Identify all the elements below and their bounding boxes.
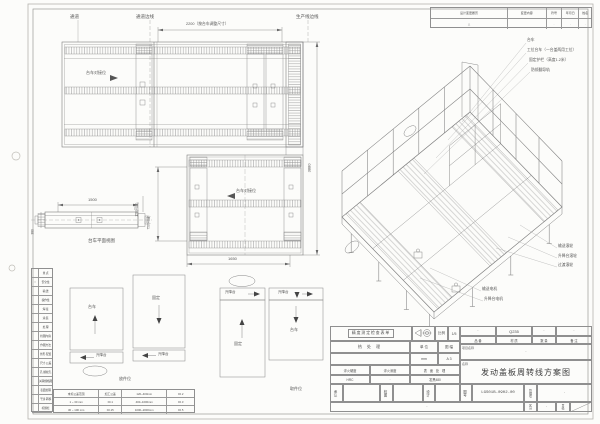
callout-conveyor-motor: 输送电机: [482, 287, 497, 291]
design-label-cell: 设计: [423, 384, 435, 402]
remark-value-cell: ·: [556, 326, 592, 336]
review-sign-cell: [393, 384, 423, 402]
quench-depth-value-cell: ·: [370, 375, 410, 384]
detail-ellipse: [402, 124, 418, 139]
plan-view-top: [62, 20, 308, 155]
drawing-name-label: 名称: [462, 362, 468, 366]
accuracy-check-cell: 精度测定检查表单: [330, 326, 412, 341]
scale-value-cell: 1/5: [448, 326, 460, 341]
table-row: 1 ~ 30 mm ±0.1 400~1000mm ±0.3: [54, 398, 194, 406]
table-row: 输 送: [32, 287, 52, 296]
projection-symbol-cell: [412, 326, 435, 341]
label-passage: 通道: [70, 15, 79, 20]
dim-1650: 1650: [228, 257, 237, 261]
diagram-lift-label: 升降台: [278, 291, 289, 295]
heat-treatment-label-cell: 热 处 理: [330, 341, 410, 353]
dwgno-label-cell: 图号: [460, 384, 472, 402]
diagram-lift-label: 升降台: [158, 353, 169, 357]
isometric-view: [342, 62, 562, 327]
dock-arrow: [227, 193, 235, 199]
drawing-number: LGS01B-0902-00: [481, 391, 515, 395]
page-label-cell: 页码: [556, 402, 570, 412]
material-value-cell: Q235: [496, 326, 532, 336]
third-angle-projection-icon: [413, 327, 433, 339]
format-value-cell: A 3: [438, 353, 460, 365]
revision-table: 设计变更履历 变更内容 符号 年月日 姓名 △ · · ·: [430, 7, 592, 28]
label-dock-2: 台车对接位: [236, 189, 256, 193]
callout-conveyor-roller: 输送滚轮: [558, 244, 573, 248]
format-label-cell: 图 幅: [438, 341, 460, 353]
table-row: 作图方法: [32, 341, 52, 350]
callout-station-trolley: 工位台车（一台盖两用工位）: [527, 48, 576, 52]
label-prod-edge: 生产线边线: [296, 15, 319, 20]
punch-hole: [12, 152, 20, 160]
bottom-note-cell: ·: [330, 402, 524, 412]
table-row: 干涉·转移: [32, 395, 52, 404]
heat-treatment-value-cell: [330, 353, 410, 365]
drawing-number-cell: LGS01B-0902-00: [472, 384, 524, 402]
callout-lift-motor: 升降台电机: [484, 297, 503, 301]
label-place-position: 放件位: [119, 377, 131, 381]
surface-treatment-value-cell: 发黑480: [410, 375, 460, 384]
material-label-cell: 材 质: [496, 336, 532, 344]
diagram-lift-label: 升降台: [225, 291, 236, 295]
accuracy-check-label: 精度测定检查表单: [348, 329, 394, 338]
motor: [414, 252, 422, 258]
table-row: 未标公差范围 加工公差 120~400mm ±0.2: [54, 390, 194, 398]
label-pick-position: 取件位: [290, 387, 302, 391]
table-row: 涂 装: [32, 314, 52, 323]
surface-treatment-label-cell: 表 面 处 理: [410, 365, 460, 375]
dim-2200: 2200（按台车调整尺寸）: [186, 22, 229, 26]
class-value-cell: ·: [537, 402, 556, 412]
dock-arrow: [110, 75, 118, 81]
diagram-fixed-label: 固定: [234, 342, 242, 346]
quench-hardness-value-cell: HRC: [330, 375, 370, 384]
dim-750: 750(可调): [147, 216, 151, 230]
quench-depth-label-cell: 淬火深度: [370, 365, 410, 375]
table-row: 表面处理: [32, 386, 52, 395]
table-row: 尺寸·公差: [32, 359, 52, 368]
quench-hardness-label-cell: 淬火硬度: [330, 365, 370, 375]
remark-label-cell: 备 注: [556, 336, 592, 344]
project-name-label: 项目名称: [462, 346, 474, 350]
punch-hole: [9, 265, 15, 271]
side-view-caption: 台车平面视图: [88, 239, 115, 244]
unit-value-cell: mm: [410, 353, 438, 365]
tolerance-table: 未标公差范围 加工公差 120~400mm ±0.2 1 ~ 30 mm ±0.…: [53, 389, 195, 413]
part-no-value-cell: ·: [460, 326, 496, 336]
table-row: 重 点: [32, 269, 52, 278]
manage-no-value-cell: ·: [537, 384, 592, 402]
drawing-name-cell: 名称 发动盖板周转线方案图: [460, 360, 592, 384]
qty-label-cell: 数 量: [532, 336, 556, 344]
diagram-trolley-label: 台车: [88, 305, 96, 309]
diagram-lift-label: 升降台: [96, 354, 107, 358]
label-dock-1: 台车对接位: [86, 71, 106, 75]
dim-3880: 3880: [308, 163, 312, 172]
label-passage-edge: 通道边线: [136, 15, 154, 20]
table-row: 孔·螺纹孔: [32, 368, 52, 377]
class-label-cell: 区分: [524, 402, 537, 412]
callout-antitip-rail: 防倾翻导轨: [531, 68, 550, 72]
approve-label-cell: 承认: [330, 384, 343, 402]
callout-fixed-rail: 固定护栏（高度1.2米）: [529, 58, 568, 62]
table-row: 关联规格图: [32, 377, 52, 386]
checklist-table: 重 点 ○安全性 输 送 操作性 焊 接 涂 装 处 理 检图内容 作图方法 外…: [31, 268, 53, 412]
table-row: △ · · ·: [431, 19, 591, 30]
qty-value-cell: ·: [532, 326, 556, 336]
manage-no-label-cell: 管理号: [524, 384, 537, 402]
table-row: 30 ~ 100 mm ±0.15 1000~2000mm ±0.5: [54, 406, 194, 414]
railing-left: [342, 66, 470, 217]
unit-label-cell: 单 位: [410, 341, 438, 353]
table-row: ○安全性: [32, 278, 52, 287]
plan-view-mid: [187, 155, 303, 255]
dim-150-adj: 150(可调): [135, 203, 139, 217]
project-name-cell: 项目名称 ·: [460, 344, 592, 360]
drawing-sheet: 通道 通道边线 2200（按台车调整尺寸） 生产线边线 台车对接位 3880 台…: [0, 0, 600, 424]
page-value-cell: [570, 402, 592, 412]
table-row: 焊 接: [32, 305, 52, 314]
callout-trolley: 台车: [527, 38, 535, 42]
callout-transition-roller: 过渡滚轮: [558, 263, 573, 267]
table-row: 标题栏: [32, 404, 52, 413]
part-no-label-cell: 品 番: [460, 336, 496, 344]
table-row: 检图内容: [32, 332, 52, 341]
table-row: 操作性: [32, 296, 52, 305]
scale-label-cell: 比例: [435, 326, 448, 341]
callout-lift-roller: 升降台滚轮: [558, 254, 577, 258]
diagram-fixed-label: 固定: [152, 296, 160, 300]
diagram-trolley-label: 台车: [290, 328, 298, 332]
table-row: 外形·配置: [32, 350, 52, 359]
review-label-cell: 校图: [380, 384, 393, 402]
table-row: 处 理: [32, 323, 52, 332]
table-row: 设计变更履历 变更内容 符号 年月日 姓名: [431, 8, 591, 19]
drawing-title: 发动盖板周转线方案图: [481, 367, 571, 378]
approve-sign-cell: [343, 384, 380, 402]
dim-380: 380: [31, 229, 35, 234]
design-sign-cell: [435, 384, 460, 402]
dim-1500: 1500: [88, 198, 97, 202]
